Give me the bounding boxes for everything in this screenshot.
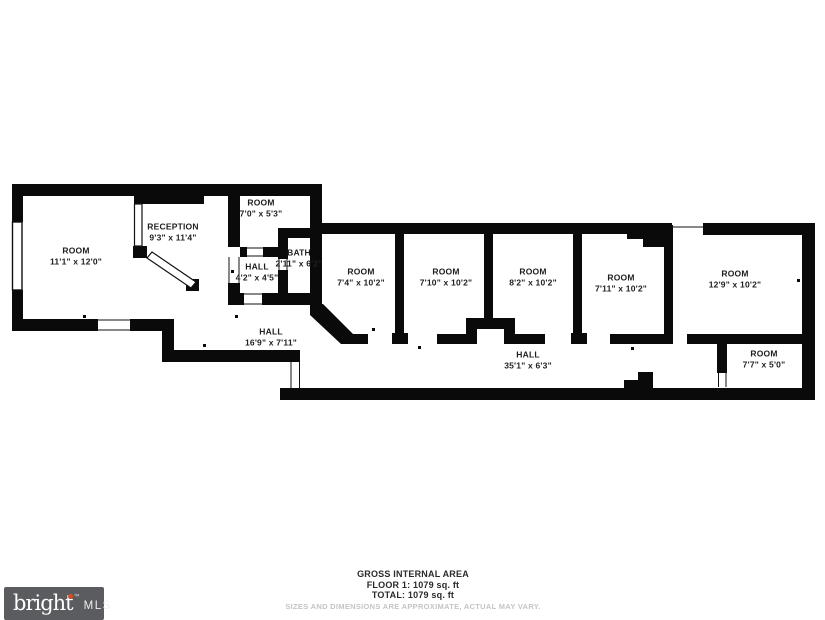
area-summary: GROSS INTERNAL AREA FLOOR 1: 1079 sq. ft… [285,569,540,612]
disclaimer: SIZES AND DIMENSIONS ARE APPROXIMATE, AC… [285,602,540,612]
bath-label: BATH2'11" x 6'2" [275,248,322,269]
hall-label: HALL35'1" x 6'3" [504,350,552,371]
reception-label: RECEPTION9'3" x 11'4" [147,222,198,243]
hall-label: HALL16'9" x 7'11" [245,327,297,348]
logo-mls-text: MLS [84,600,112,612]
room-label: ROOM7'7" x 5'0" [743,349,786,370]
room-label: ROOM8'2" x 10'2" [509,267,557,288]
floorplan-walls [0,0,825,620]
room-label: ROOM7'10" x 10'2" [420,267,473,288]
door-opening-lines [98,227,726,388]
door-leaf-reception [147,252,196,288]
room-label: ROOM7'0" x 5'3" [240,198,283,219]
total-area: TOTAL: 1079 sq. ft [285,590,540,601]
brightmls-logo: bright™MLS [4,587,104,620]
logo-brand-text: bright [13,593,73,614]
room-label: ROOM11'1" x 12'0" [50,246,102,267]
gross-area-title: GROSS INTERNAL AREA [285,569,540,580]
room-label: ROOM12'9" x 10'2" [709,269,762,290]
window-left [13,222,23,290]
room-label: ROOM7'11" x 10'2" [595,273,647,294]
hall-label: HALL4'2" x 4'5" [236,262,279,283]
partition-glazed [135,204,143,246]
logo-accent-dot-icon [68,594,73,599]
floorplan-canvas: ROOM11'1" x 12'0" RECEPTION9'3" x 11'4" … [0,0,825,620]
logo-trademark: ™ [74,594,80,600]
room-label: ROOM7'4" x 10'2" [337,267,385,288]
floor-area: FLOOR 1: 1079 sq. ft [285,580,540,591]
